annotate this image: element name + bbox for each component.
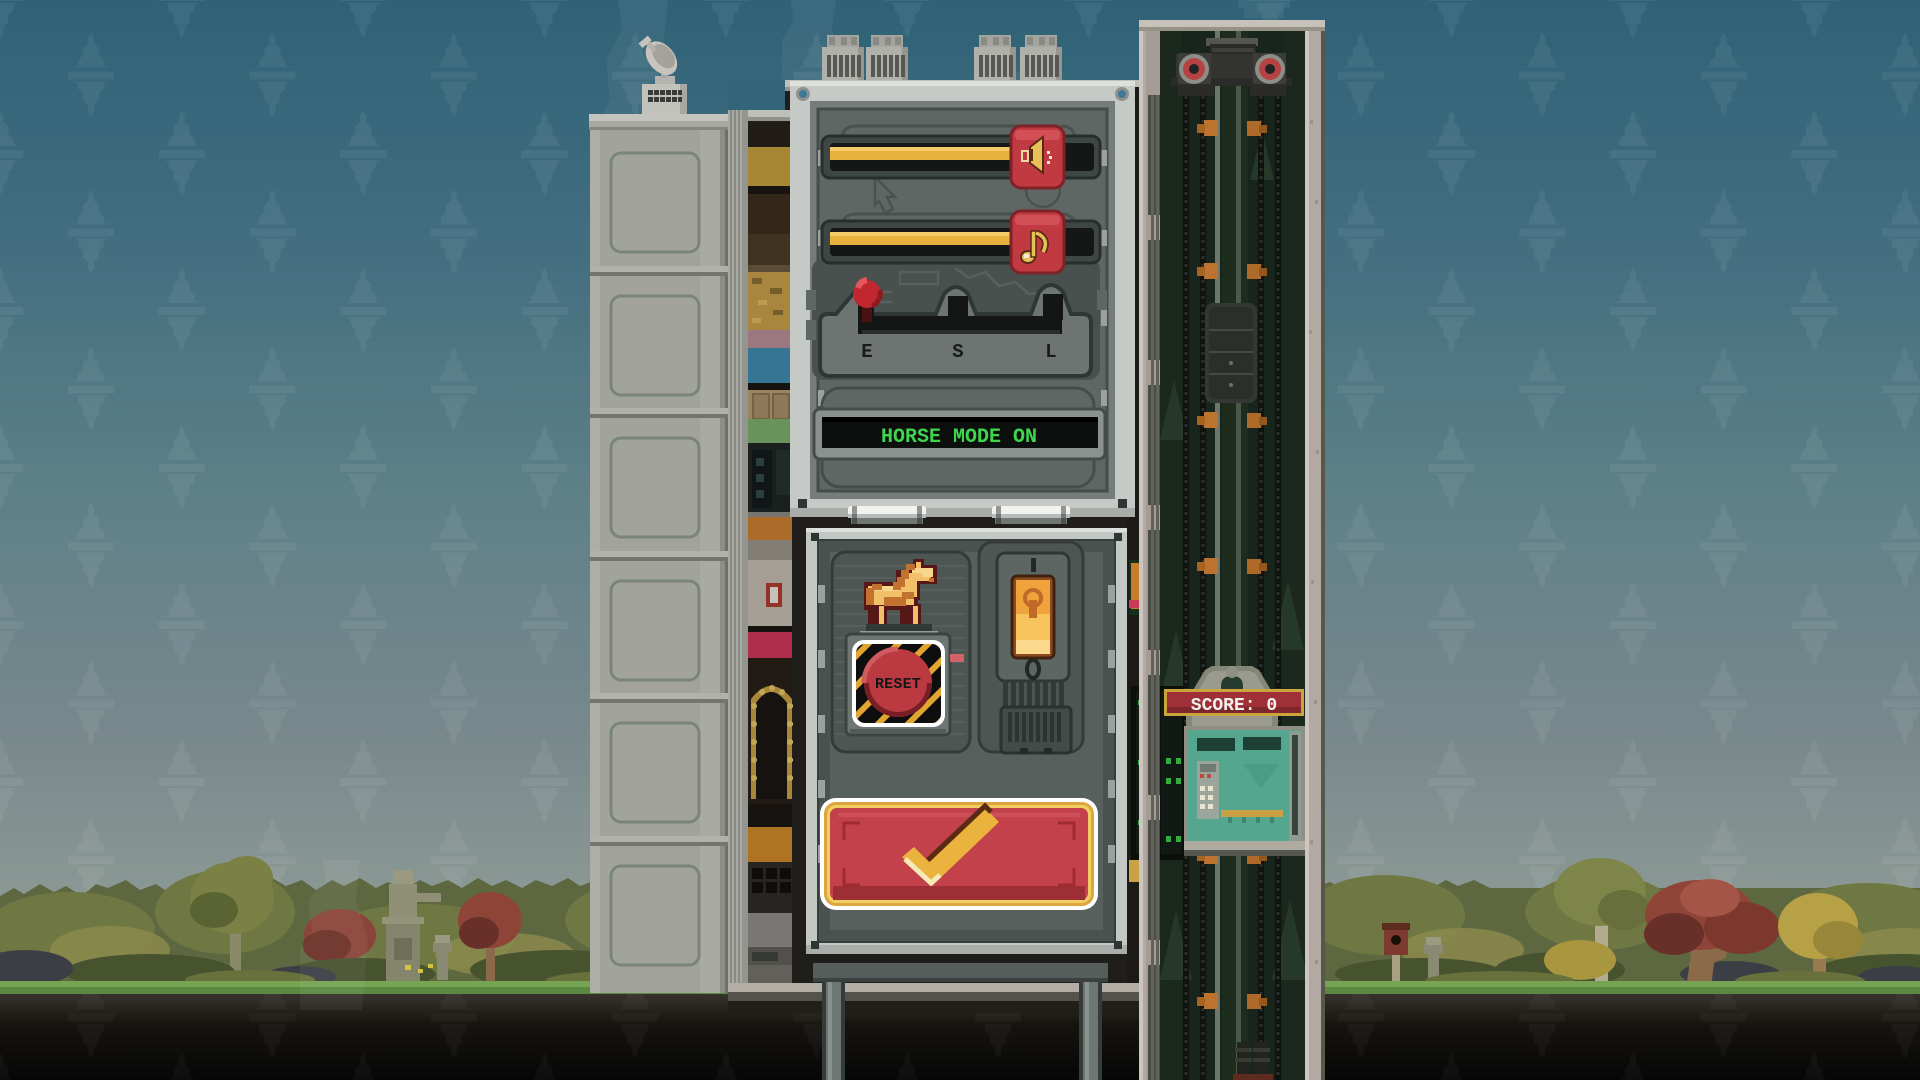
svg-text:RESET: RESET xyxy=(875,676,921,693)
svg-text:E: E xyxy=(861,341,872,363)
svg-text:L: L xyxy=(1045,341,1056,363)
svg-text:S: S xyxy=(952,341,963,363)
svg-text:HORSE MODE ON: HORSE MODE ON xyxy=(881,426,1037,449)
svg-text:SCORE: 0: SCORE: 0 xyxy=(1191,696,1277,716)
